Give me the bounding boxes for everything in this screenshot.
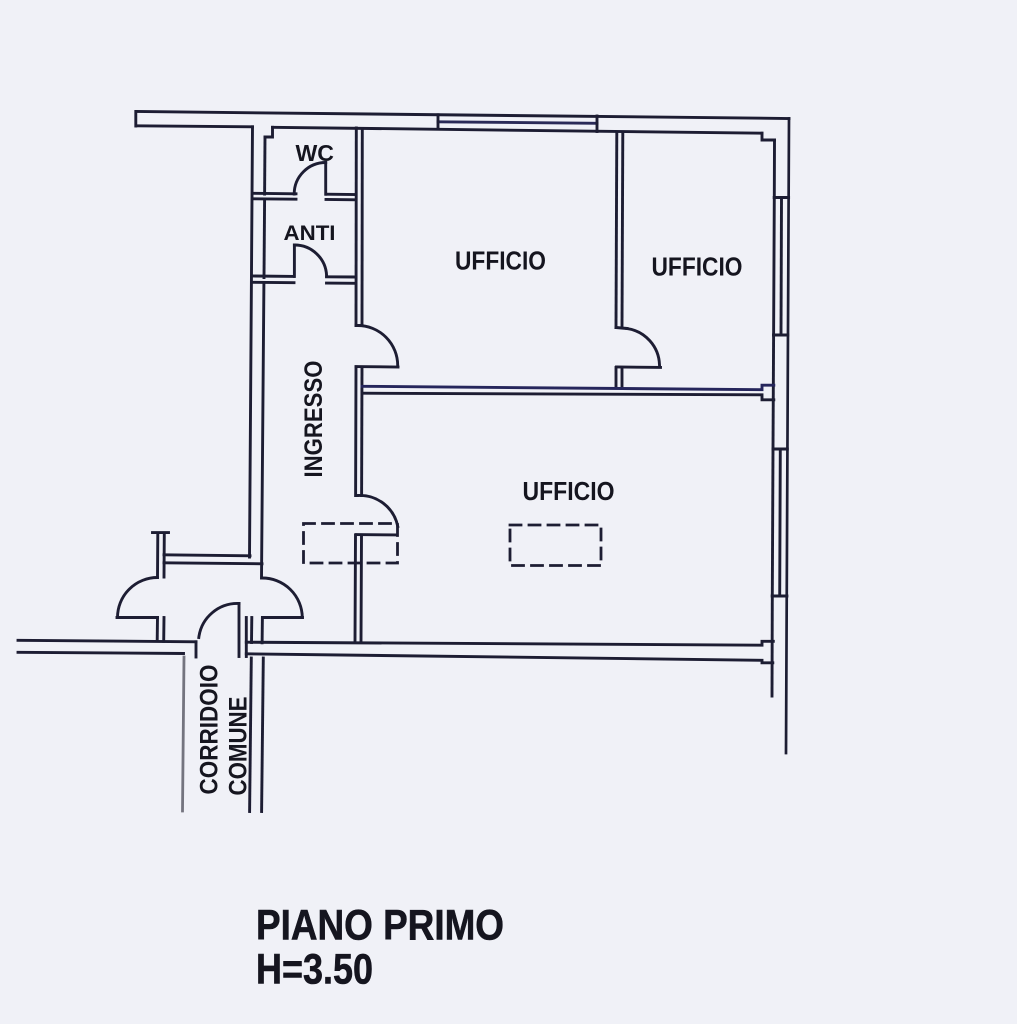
svg-text:H=3.50: H=3.50 bbox=[256, 947, 373, 994]
svg-text:UFFICIO: UFFICIO bbox=[652, 252, 743, 282]
svg-text:UFFICIO: UFFICIO bbox=[523, 476, 615, 506]
svg-text:WC: WC bbox=[296, 140, 335, 166]
svg-text:COMUNE: COMUNE bbox=[224, 697, 252, 796]
svg-text:UFFICIO: UFFICIO bbox=[455, 246, 546, 276]
svg-text:CORRIDOIO: CORRIDOIO bbox=[196, 665, 224, 795]
svg-text:ANTI: ANTI bbox=[284, 222, 336, 245]
svg-text:INGRESSO: INGRESSO bbox=[300, 361, 328, 478]
svg-text:PIANO PRIMO: PIANO PRIMO bbox=[256, 903, 504, 950]
